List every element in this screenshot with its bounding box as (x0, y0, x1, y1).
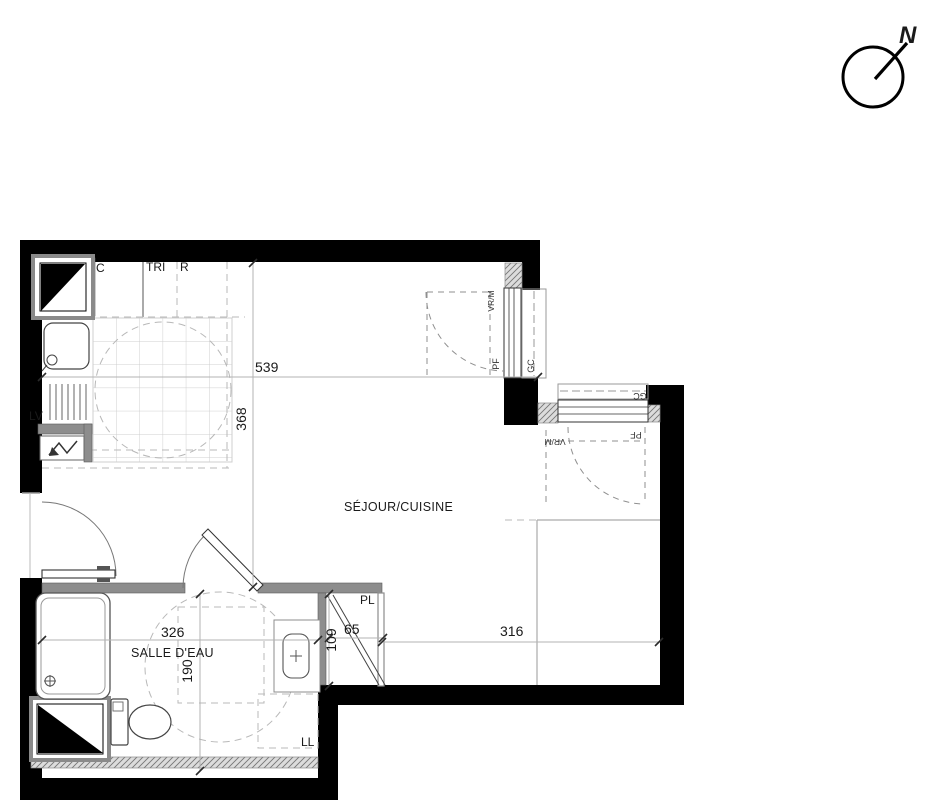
window-top-railing-label: GC (633, 391, 647, 401)
toilet (111, 699, 171, 745)
washbasin-vanity (274, 620, 320, 692)
dim-closet-width: 65 (344, 621, 360, 637)
dim-closet-depth: 109 (323, 628, 339, 652)
floor-guide-lines (505, 520, 660, 685)
closet-r-label: R (180, 260, 189, 274)
window-right-type-label: PF (491, 358, 501, 370)
closet-c-label: C (96, 261, 105, 275)
floor-plan-drawing: N C TRI R LV LL PL SÉJOUR/CUISINE SALLE … (0, 0, 935, 800)
hob-symbol (40, 436, 84, 460)
washing-machine-label: LL (301, 735, 315, 749)
entry-closet-partitions (88, 262, 245, 317)
duct-shaft-top (33, 256, 93, 318)
north-compass: N (843, 22, 917, 107)
bathroom-door (183, 529, 263, 591)
dim-living-right-width: 316 (500, 623, 524, 639)
floor-plan-page: N C TRI R LV LL PL SÉJOUR/CUISINE SALLE … (0, 0, 935, 800)
dishwasher-label: LV (29, 409, 43, 423)
kitchen-sink (42, 323, 89, 371)
compass-north-label: N (899, 22, 917, 49)
window-right-railing-label: GC (526, 359, 536, 373)
window-top-shutter-label: VR/M (544, 437, 565, 447)
closet-pl-label: PL (360, 593, 375, 607)
room-living-kitchen-label: SÉJOUR/CUISINE (344, 499, 453, 514)
dim-living-depth: 368 (233, 407, 249, 431)
window-right-shutter-label: VR/M (486, 290, 496, 311)
room-bathroom-label: SALLE D'EAU (131, 646, 214, 660)
duct-shaft-bottom (31, 698, 109, 760)
window-top-type-label: PF (630, 430, 642, 440)
dishwasher-symbol (50, 384, 86, 420)
kitchen-tile-grid (93, 318, 232, 462)
shower-tray (36, 593, 110, 699)
dim-bathroom-width: 326 (161, 624, 185, 640)
entrance-door (22, 493, 116, 582)
dim-living-width: 539 (255, 359, 279, 375)
closet-tri-label: TRI (146, 260, 165, 274)
dim-bathroom-depth: 190 (179, 659, 195, 683)
